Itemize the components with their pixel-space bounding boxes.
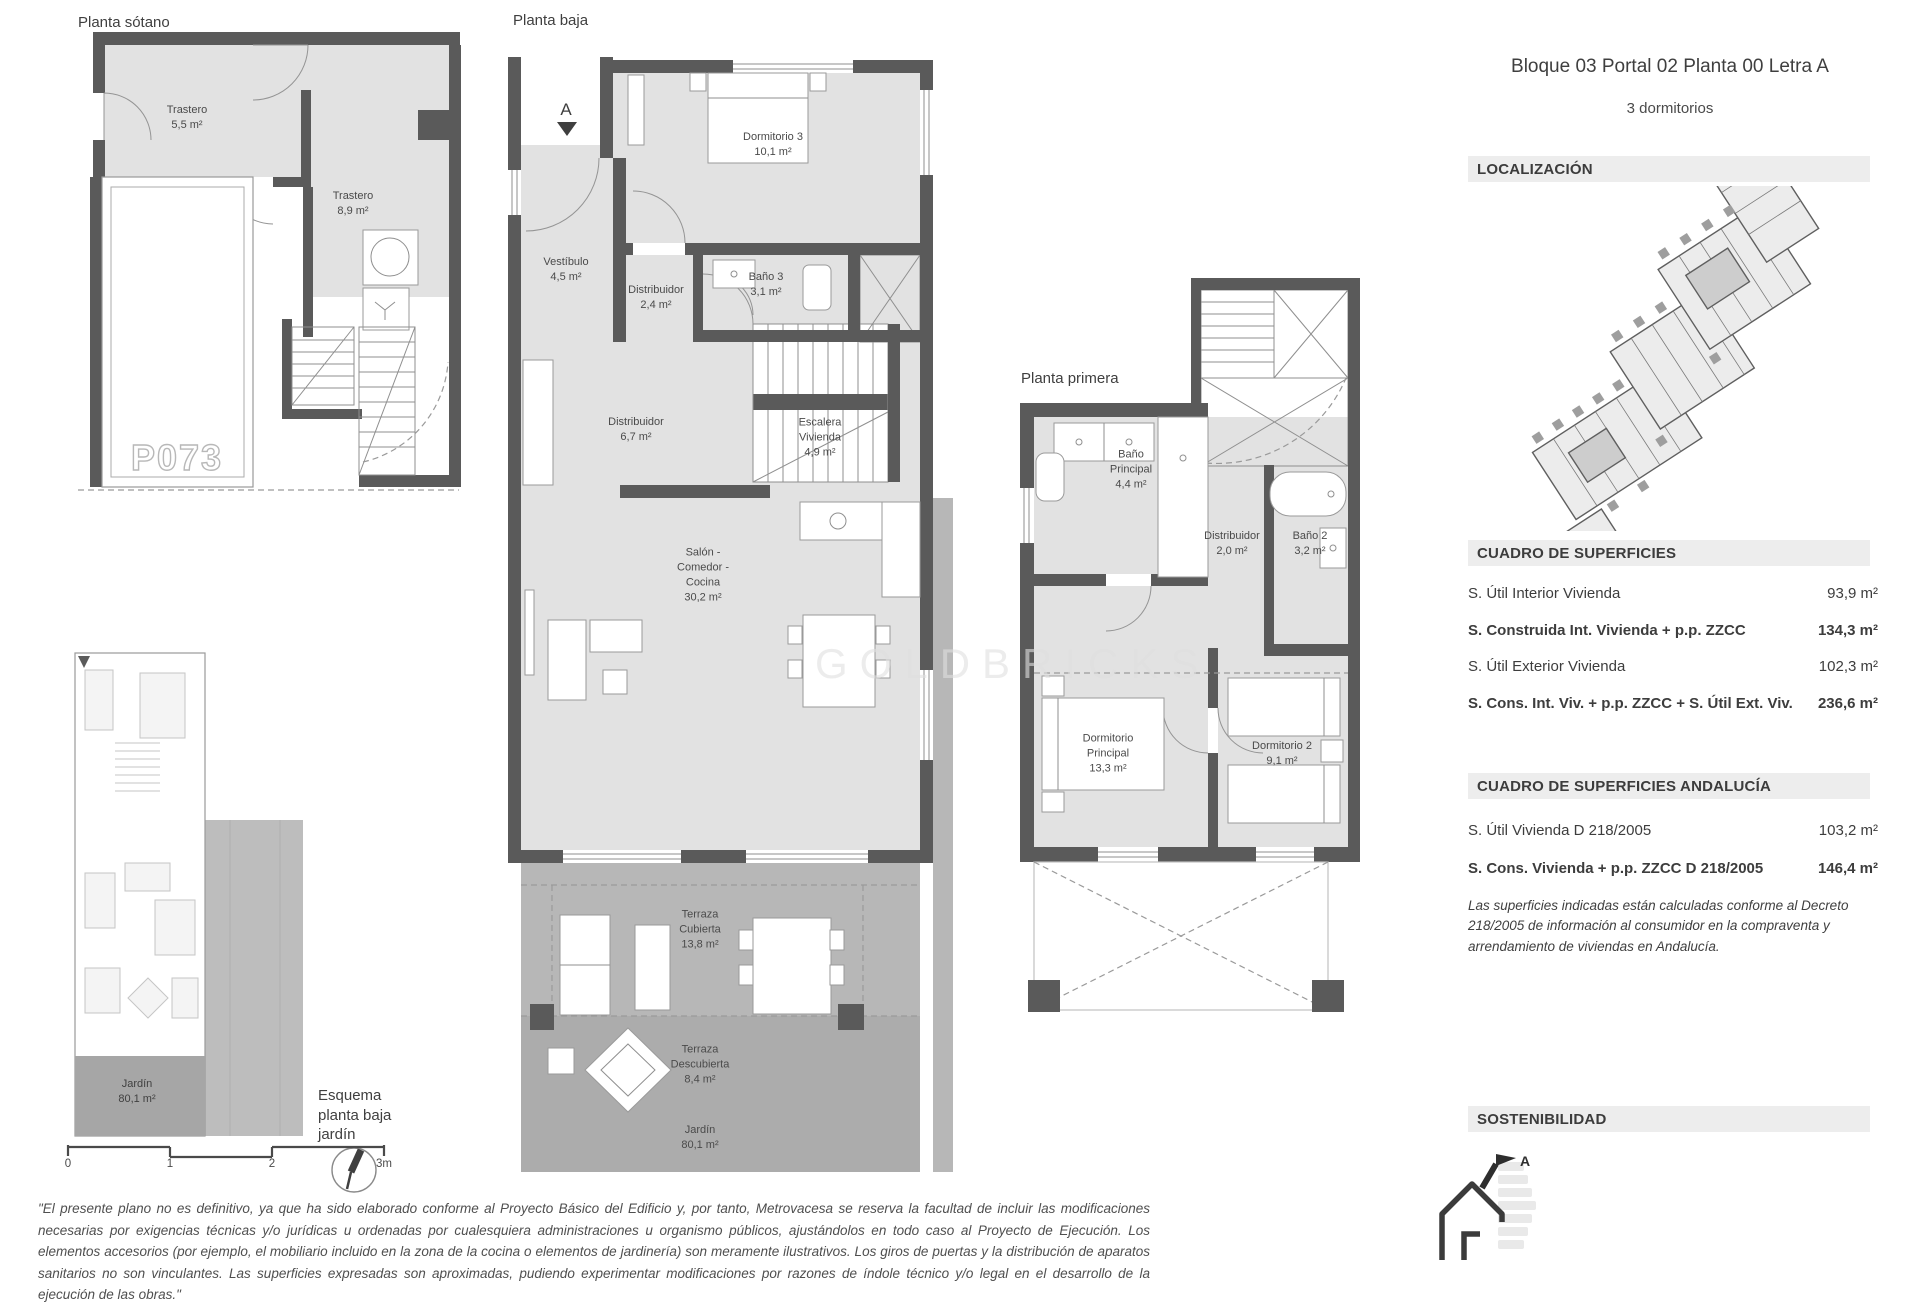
plan-baja: Planta baja <box>508 12 958 1182</box>
superficies-row: S. Cons. Int. Viv. + p.p. ZZCC + S. Útil… <box>1468 695 1878 712</box>
esquema-caption: Esquema planta baja jardín <box>318 1086 391 1145</box>
room-label: Baño 23,2 m² <box>1285 529 1335 559</box>
andalucia-row: S. Útil Vivienda D 218/2005103,2 m² <box>1468 822 1878 839</box>
section-andalucia: CUADRO DE SUPERFICIES ANDALUCÍA <box>1468 773 1870 799</box>
esquema-drawing <box>70 648 315 1143</box>
plan-sotano-drawing: P073 <box>63 32 463 497</box>
room-label: Escalera Vivienda4,9 m² <box>793 416 847 461</box>
room-label: Distribuidor6,7 m² <box>596 415 676 445</box>
energy-rating-letter: A <box>1520 1153 1530 1169</box>
superficies-row: S. Útil Interior Vivienda93,9 m² <box>1468 585 1878 602</box>
section-marker-arrow-icon <box>552 120 582 140</box>
room-label: Salón - Comedor - Cocina30,2 m² <box>671 545 735 604</box>
room-label: Trastero8,9 m² <box>318 189 388 219</box>
esquema-jardin: Jardín80,1 m² <box>70 648 315 1148</box>
esquema-jardin-label: Jardín80,1 m² <box>107 1077 167 1107</box>
section-sostenibilidad: SOSTENIBILIDAD <box>1468 1106 1870 1132</box>
page-title: Bloque 03 Portal 02 Planta 00 Letra A <box>1440 56 1900 78</box>
andalucia-note: Las superficies indicadas están calculad… <box>1468 896 1870 957</box>
page-subtitle: 3 dormitorios <box>1440 100 1900 117</box>
watermark: GOLDBRICKS <box>815 640 1210 688</box>
parking-number: P073 <box>131 437 223 478</box>
room-label: Dormitorio 29,1 m² <box>1239 739 1325 769</box>
room-label: Trastero5,5 m² <box>152 103 222 133</box>
plan-sotano: Planta sótano P073 <box>63 8 473 508</box>
room-label: Baño Principal4,4 m² <box>1102 448 1160 493</box>
section-superficies: CUADRO DE SUPERFICIES <box>1468 540 1870 566</box>
superficies-row: S. Útil Exterior Vivienda102,3 m² <box>1468 658 1878 675</box>
room-label: Dormitorio 310,1 m² <box>728 130 818 160</box>
room-label: Dormitorio Principal13,3 m² <box>1076 732 1140 777</box>
room-label: Vestíbulo4,5 m² <box>531 255 601 285</box>
plan-sotano-title: Planta sótano <box>78 14 170 31</box>
room-label: Jardín80,1 m² <box>665 1123 735 1153</box>
room-label: Terraza Cubierta13,8 m² <box>674 908 726 953</box>
disclaimer-text: "El presente plano no es definitivo, ya … <box>38 1198 1150 1306</box>
section-localizacion: LOCALIZACIÓN <box>1468 156 1870 182</box>
section-marker-a: A <box>560 100 571 120</box>
room-label: Terraza Descubierta8,4 m² <box>663 1043 737 1088</box>
superficies-row: S. Construida Int. Vivienda + p.p. ZZCC1… <box>1468 622 1878 639</box>
room-label: Distribuidor2,0 m² <box>1191 529 1273 559</box>
scale-bar <box>66 1144 396 1162</box>
andalucia-row: S. Cons. Vivienda + p.p. ZZCC D 218/2005… <box>1468 860 1878 877</box>
plan-baja-title: Planta baja <box>513 12 588 29</box>
room-label: Distribuidor2,4 m² <box>616 283 696 313</box>
energy-rating-icon: A <box>1420 1148 1550 1278</box>
site-plan <box>1468 186 1868 531</box>
room-label: Baño 33,1 m² <box>736 270 796 300</box>
plan-baja-drawing <box>508 30 953 1180</box>
